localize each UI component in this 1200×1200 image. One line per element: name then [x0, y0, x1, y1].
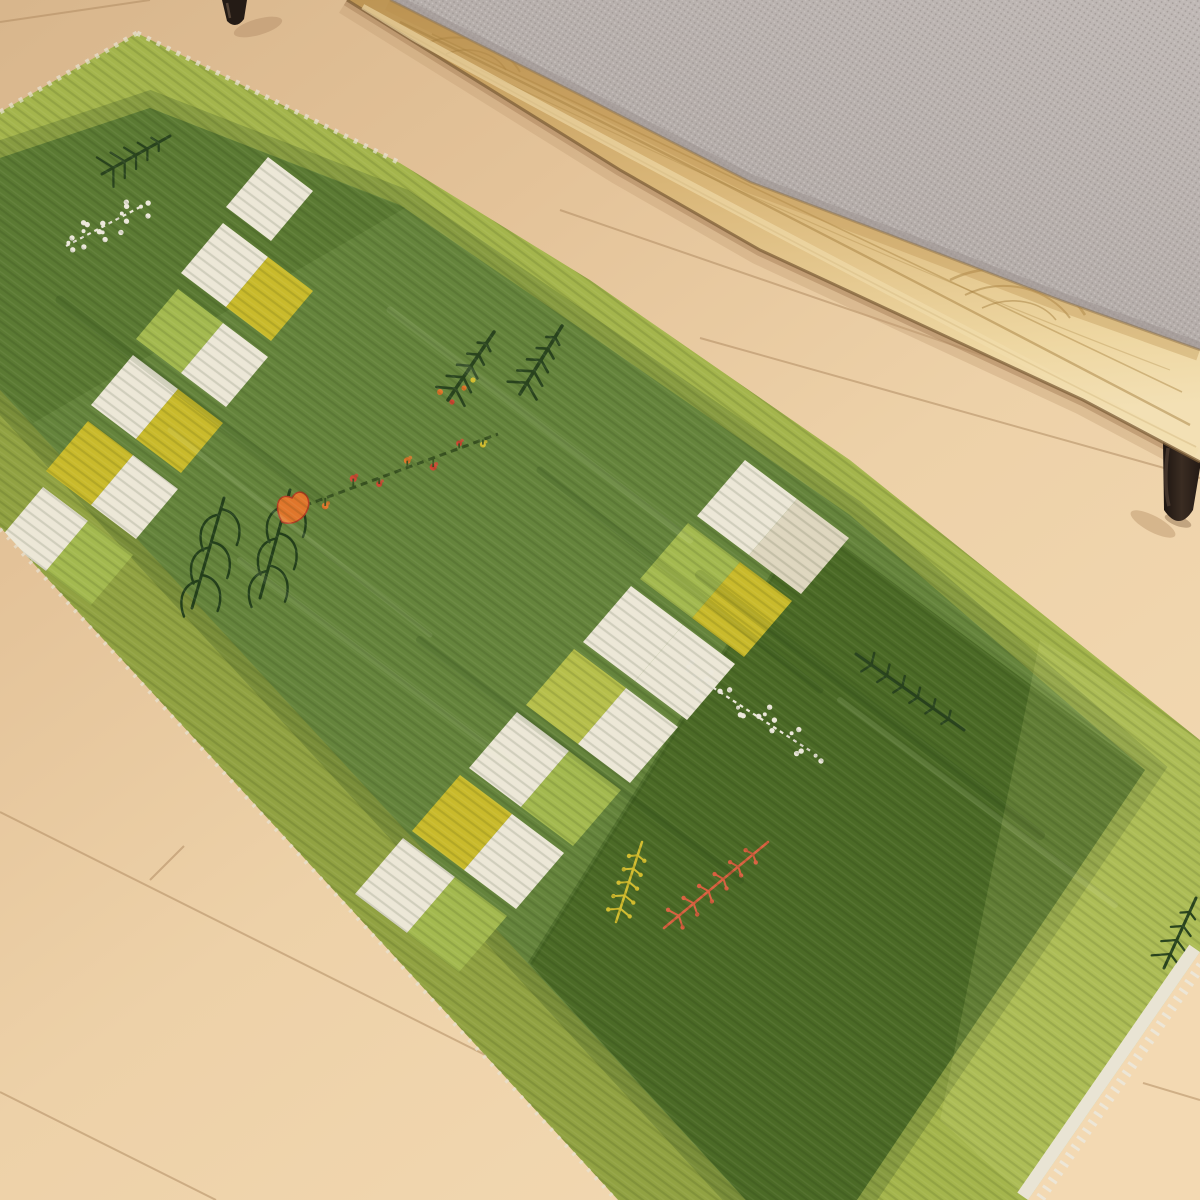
room-photo [0, 0, 1200, 1200]
photo-canvas [0, 0, 1200, 1200]
